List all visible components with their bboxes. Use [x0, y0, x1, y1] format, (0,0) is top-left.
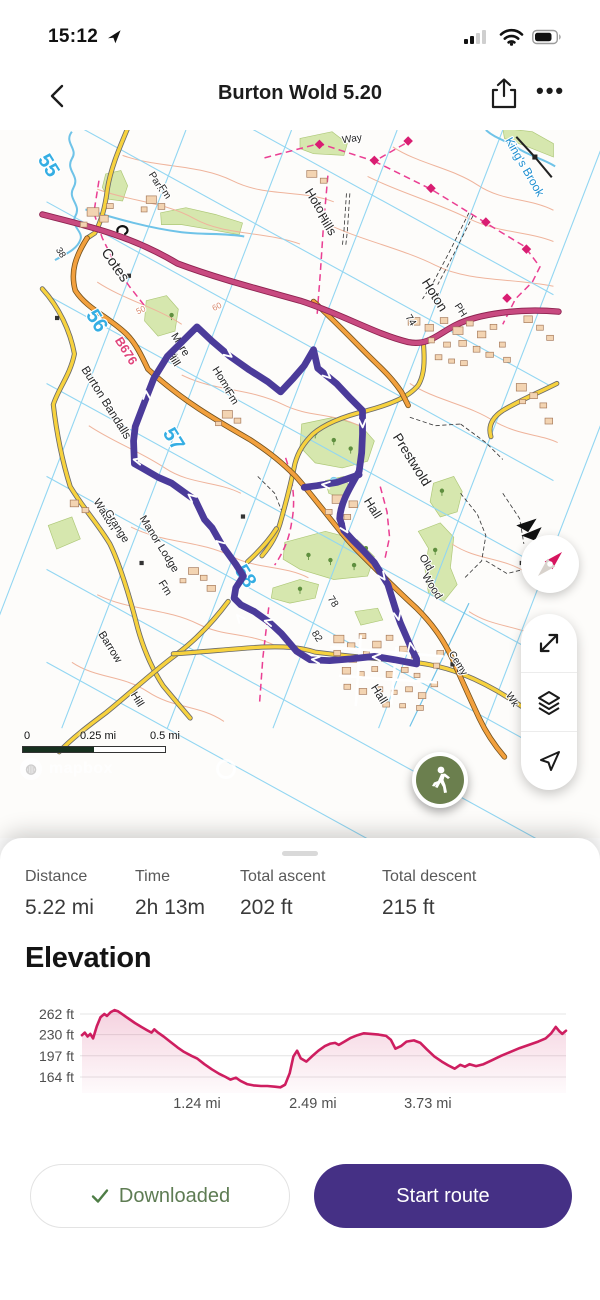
svg-text:Cotes: Cotes [98, 245, 133, 285]
scale-half: 0.5 mi [150, 730, 180, 742]
stat-time: Time 2h 13m [135, 868, 240, 920]
layers-button[interactable] [521, 672, 577, 731]
svg-text:82: 82 [309, 629, 324, 645]
route-detail-screen: 15:12 [0, 0, 600, 1300]
walker-icon [427, 765, 453, 795]
svg-text:Hoton: Hoton [419, 276, 451, 315]
navigation-arrow-icon [535, 747, 563, 775]
stat-distance: Distance 5.22 mi [25, 868, 135, 920]
svg-text:3.73 mi: 3.73 mi [404, 1096, 452, 1112]
check-icon [90, 1186, 110, 1206]
locate-button[interactable] [521, 731, 577, 790]
svg-text:55: 55 [33, 150, 64, 181]
svg-text:Hall: Hall [361, 495, 384, 521]
route-start-marker[interactable] [412, 752, 468, 808]
attribution-badge-icon[interactable] [216, 759, 236, 779]
svg-text:230 ft: 230 ft [39, 1027, 74, 1043]
map-canvas[interactable]: 55565758B67638747882ParkFmCotesHotonHill… [0, 130, 600, 838]
mapbox-logo-icon[interactable]: ◍ [20, 758, 42, 780]
action-buttons: Downloaded Start route [0, 1164, 600, 1228]
compass-button[interactable] [521, 535, 579, 593]
svg-text:74: 74 [403, 313, 418, 329]
svg-text:Fm: Fm [156, 578, 175, 598]
svg-text:262 ft: 262 ft [39, 1006, 74, 1022]
svg-text:Burton Bandalls: Burton Bandalls [79, 363, 135, 441]
map-controls [521, 614, 577, 790]
scale-quarter: 0.25 mi [80, 730, 116, 742]
map-attribution: ◍ mapbox [20, 758, 236, 780]
drag-handle[interactable] [282, 851, 318, 856]
svg-text:56: 56 [81, 306, 112, 337]
clock: 15:12 [48, 26, 98, 48]
svg-text:164 ft: 164 ft [39, 1069, 74, 1085]
bottom-sheet: Distance 5.22 mi Time 2h 13m Total ascen… [0, 838, 600, 1300]
svg-text:Manor Lodge: Manor Lodge [137, 513, 181, 574]
svg-text:Way: Way [341, 132, 363, 146]
svg-text:Barrow: Barrow [96, 629, 125, 665]
svg-text:PH: PH [452, 301, 469, 319]
map-scale: 0 0.25 mi 0.5 mi [22, 730, 192, 753]
fullscreen-button[interactable] [521, 614, 577, 672]
stat-ascent: Total ascent 202 ft [240, 868, 382, 920]
svg-text:78: 78 [325, 594, 340, 610]
svg-text:2.49 mi: 2.49 mi [289, 1096, 337, 1112]
expand-icon [536, 630, 562, 656]
share-button[interactable] [488, 76, 520, 112]
status-bar: 15:12 [0, 0, 600, 62]
downloaded-button[interactable]: Downloaded [30, 1164, 290, 1228]
wifi-icon [499, 28, 524, 46]
svg-text:197 ft: 197 ft [39, 1048, 74, 1064]
nav-bar: Burton Wold 5.20 ••• [0, 62, 600, 130]
svg-text:1.24 mi: 1.24 mi [173, 1096, 221, 1112]
battery-icon [532, 29, 562, 45]
stats-row: Distance 5.22 mi Time 2h 13m Total ascen… [25, 868, 476, 920]
svg-text:Prestwold: Prestwold [390, 431, 434, 489]
mapbox-wordmark[interactable]: mapbox [49, 760, 113, 778]
svg-text:38: 38 [54, 246, 68, 260]
start-route-button[interactable]: Start route [314, 1164, 572, 1228]
elevation-heading: Elevation [25, 942, 151, 975]
svg-text:Hills: Hills [315, 210, 340, 238]
scale-zero: 0 [24, 730, 30, 742]
location-active-icon [107, 29, 122, 44]
stat-descent: Total descent 215 ft [382, 868, 476, 920]
layers-icon [535, 688, 563, 716]
svg-text:57: 57 [158, 424, 189, 455]
elevation-chart: 262 ft230 ft197 ft164 ft 1.24 mi2.49 mi3… [0, 996, 600, 1118]
cell-signal-icon [464, 28, 491, 46]
more-options-button[interactable]: ••• [536, 78, 572, 110]
